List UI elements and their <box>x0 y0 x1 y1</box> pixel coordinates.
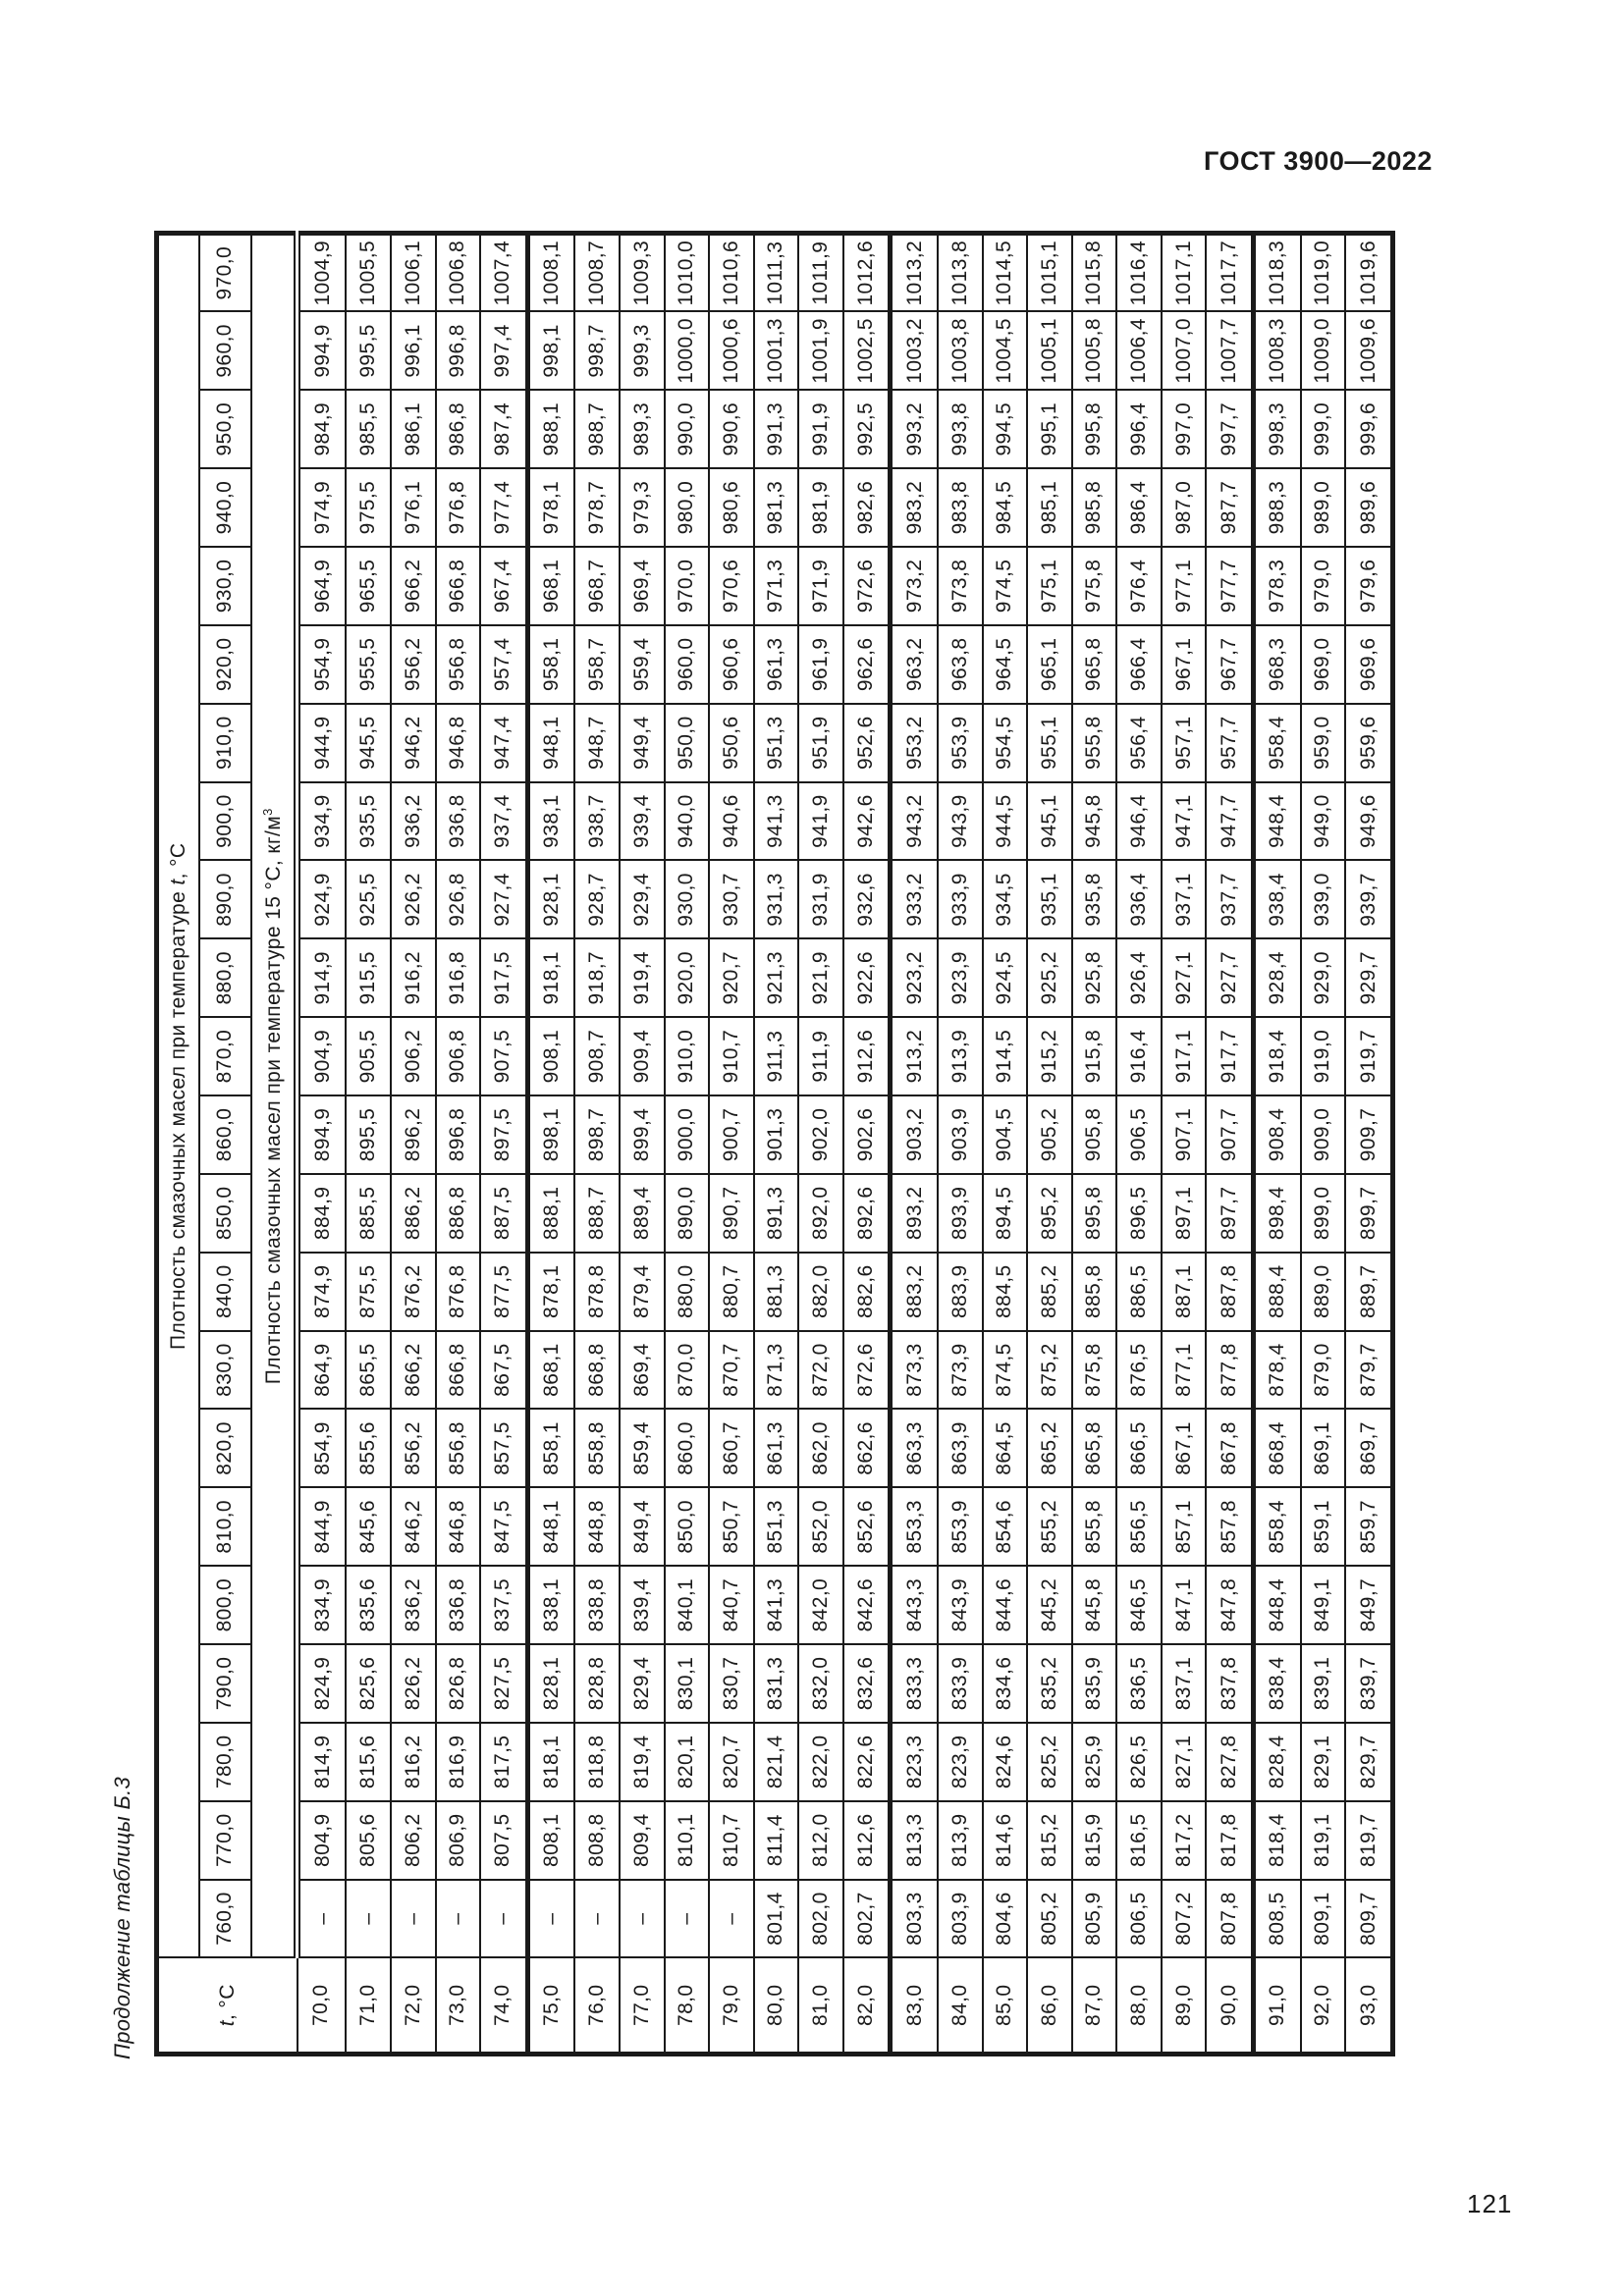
density-value-cell: 830,7 <box>709 1644 754 1723</box>
density-value-cell: 927,4 <box>480 860 527 938</box>
density-value-cell: 832,6 <box>843 1644 891 1723</box>
density-value-cell: 1019,6 <box>1345 234 1392 312</box>
density-value-cell: 988,1 <box>527 390 574 468</box>
density-col-header: 920,0 <box>199 625 251 704</box>
density-value-cell: 907,1 <box>1162 1095 1207 1174</box>
density-value-cell: 885,5 <box>346 1174 391 1253</box>
density-value-cell: 887,5 <box>480 1174 527 1253</box>
density-value-cell: 1002,5 <box>843 311 891 390</box>
density-value-cell: 972,6 <box>843 547 891 625</box>
table-row: 91,0808,5818,4828,4838,4848,4858,4868,48… <box>1253 234 1300 2055</box>
temp-row-header: 93,0 <box>1345 1958 1392 2055</box>
density-value-cell: 975,5 <box>346 468 391 547</box>
density-value-cell: 846,5 <box>1116 1566 1162 1644</box>
density-value-cell: 989,0 <box>1301 468 1346 547</box>
density-value-cell: 956,2 <box>391 625 436 704</box>
density-value-cell: 939,7 <box>1345 860 1392 938</box>
table-continuation-label: Продолжение таблицы Б.3 <box>110 1777 135 2059</box>
density-value-cell: 868,8 <box>574 1331 620 1410</box>
density-col-header: 820,0 <box>199 1409 251 1487</box>
density-value-cell: 919,0 <box>1301 1017 1346 1095</box>
density-value-cell: 1011,9 <box>798 234 843 312</box>
rotated-table-area: t, °С Плотность смазочных масел при темп… <box>154 231 1395 2056</box>
density-value-cell: 980,0 <box>665 468 710 547</box>
density-value-cell: 951,3 <box>754 704 799 782</box>
density-value-cell: 873,9 <box>938 1331 983 1410</box>
density-value-cell: 870,7 <box>709 1331 754 1410</box>
temp-row-header: 81,0 <box>798 1958 843 2055</box>
density-col-header: 790,0 <box>199 1644 251 1723</box>
density-value-cell: 985,5 <box>346 390 391 468</box>
temp-row-header: 90,0 <box>1206 1958 1253 2055</box>
density-value-cell: 885,8 <box>1072 1253 1117 1331</box>
density-value-cell: 813,3 <box>891 1801 938 1880</box>
density-value-cell: 892,6 <box>843 1174 891 1253</box>
density-value-cell: 834,9 <box>298 1566 347 1644</box>
density-value-cell: 946,2 <box>391 704 436 782</box>
density-value-cell: 1015,8 <box>1072 234 1117 312</box>
density-value-cell: 950,6 <box>709 704 754 782</box>
density-value-cell: 908,7 <box>574 1017 620 1095</box>
density-value-cell: 940,0 <box>665 782 710 861</box>
density-value-cell: 856,2 <box>391 1409 436 1487</box>
density-value-cell: 897,7 <box>1206 1174 1253 1253</box>
density-value-cell: 938,1 <box>527 782 574 861</box>
density-value-cell: 1013,2 <box>891 234 938 312</box>
density-value-cell: 930,7 <box>709 860 754 938</box>
density-value-cell: 853,3 <box>891 1487 938 1566</box>
density-col-header: 960,0 <box>199 311 251 390</box>
density-value-cell: 816,2 <box>391 1723 436 1801</box>
density-value-cell: 975,1 <box>1027 547 1072 625</box>
density-value-cell: 888,1 <box>527 1174 574 1253</box>
table-row: 86,0805,2815,2825,2835,2845,2855,2865,28… <box>1027 234 1072 2055</box>
density-value-cell: 898,7 <box>574 1095 620 1174</box>
density-value-cell: 839,1 <box>1301 1644 1346 1723</box>
density-value-cell: 905,5 <box>346 1017 391 1095</box>
table-row: 83,0803,3813,3823,3833,3843,3853,3863,38… <box>891 234 938 2055</box>
density-value-cell: 965,8 <box>1072 625 1117 704</box>
density-value-cell: 813,9 <box>938 1801 983 1880</box>
density-value-cell: 809,7 <box>1345 1880 1392 1958</box>
density-value-cell: 865,2 <box>1027 1409 1072 1487</box>
density-value-cell: 941,9 <box>798 782 843 861</box>
density-value-cell: 873,3 <box>891 1331 938 1410</box>
density-value-cell: 880,0 <box>665 1253 710 1331</box>
density-value-cell: 898,1 <box>527 1095 574 1174</box>
density-value-cell: 891,3 <box>754 1174 799 1253</box>
density-value-cell: 924,9 <box>298 860 347 938</box>
density-value-cell: 1004,9 <box>298 234 347 312</box>
density-value-cell: 850,0 <box>665 1487 710 1566</box>
density-value-cell: 946,4 <box>1116 782 1162 861</box>
temp-row-header: 73,0 <box>436 1958 481 2055</box>
density-value-cell: 829,4 <box>620 1644 665 1723</box>
density-value-cell: 888,7 <box>574 1174 620 1253</box>
density-value-cell: 969,6 <box>1345 625 1392 704</box>
temp-row-header: 78,0 <box>665 1958 710 2055</box>
density-col-header: 860,0 <box>199 1095 251 1174</box>
density-value-cell: – <box>574 1880 620 1958</box>
density-value-cell: 935,5 <box>346 782 391 861</box>
table-row: 89,0807,2817,2827,1837,1847,1857,1867,18… <box>1162 234 1207 2055</box>
density-value-cell: 825,6 <box>346 1644 391 1723</box>
density-value-cell: 955,5 <box>346 625 391 704</box>
doc-designation: ГОСТ 3900—2022 <box>1204 146 1433 177</box>
density-value-cell: 966,8 <box>436 547 481 625</box>
density-value-cell: 957,4 <box>480 625 527 704</box>
density-value-cell: 923,9 <box>938 938 983 1017</box>
density-value-cell: 893,2 <box>891 1174 938 1253</box>
density-value-cell: 892,0 <box>798 1174 843 1253</box>
density-value-cell: 871,3 <box>754 1331 799 1410</box>
density-value-cell: 903,2 <box>891 1095 938 1174</box>
density-value-cell: 838,1 <box>527 1566 574 1644</box>
density-value-cell: 900,0 <box>665 1095 710 1174</box>
density-value-cell: 986,8 <box>436 390 481 468</box>
density-value-cell: 995,1 <box>1027 390 1072 468</box>
density-value-cell: 847,1 <box>1162 1566 1207 1644</box>
density-value-cell: 994,9 <box>298 311 347 390</box>
density-value-cell: 896,5 <box>1116 1174 1162 1253</box>
density-value-cell: 916,2 <box>391 938 436 1017</box>
density-value-cell: 810,7 <box>709 1801 754 1880</box>
density-value-cell: 899,7 <box>1345 1174 1392 1253</box>
density-col-header: 830,0 <box>199 1331 251 1410</box>
density-value-cell: 1017,1 <box>1162 234 1207 312</box>
density-value-cell: 914,9 <box>298 938 347 1017</box>
density-value-cell: 974,9 <box>298 468 347 547</box>
density-value-cell: 973,8 <box>938 547 983 625</box>
density-value-cell: 1016,4 <box>1116 234 1162 312</box>
density-value-cell: 968,7 <box>574 547 620 625</box>
density-column-headers: 760,0770,0780,0790,0800,0810,0820,0830,0… <box>199 234 251 2055</box>
density-value-cell: 823,9 <box>938 1723 983 1801</box>
density-value-cell: 939,0 <box>1301 860 1346 938</box>
density-value-cell: 809,4 <box>620 1801 665 1880</box>
density-value-cell: 804,6 <box>983 1880 1028 1958</box>
density-value-cell: 965,5 <box>346 547 391 625</box>
document-page: ГОСТ 3900—2022 Продолжение таблицы Б.3 t… <box>0 0 1624 2296</box>
density-value-cell: – <box>298 1880 347 1958</box>
density-value-cell: 962,6 <box>843 625 891 704</box>
density-value-cell: 1003,2 <box>891 311 938 390</box>
density-value-cell: 998,3 <box>1253 390 1300 468</box>
density-value-cell: 922,6 <box>843 938 891 1017</box>
density-value-cell: 828,8 <box>574 1644 620 1723</box>
density-value-cell: 816,5 <box>1116 1801 1162 1880</box>
density-value-cell: 839,4 <box>620 1566 665 1644</box>
density-value-cell: 853,9 <box>938 1487 983 1566</box>
density-value-cell: 967,7 <box>1206 625 1253 704</box>
density-value-cell: 868,4 <box>1253 1409 1300 1487</box>
density-conversion-table: t, °С Плотность смазочных масел при темп… <box>154 231 1395 2056</box>
density-value-cell: 867,8 <box>1206 1409 1253 1487</box>
density-value-cell: 829,1 <box>1301 1723 1346 1801</box>
density-value-cell: 884,5 <box>983 1253 1028 1331</box>
density-value-cell: 895,2 <box>1027 1174 1072 1253</box>
density-value-cell: 983,2 <box>891 468 938 547</box>
density-value-cell: 997,4 <box>480 311 527 390</box>
density-value-cell: 958,7 <box>574 625 620 704</box>
density-value-cell: 990,6 <box>709 390 754 468</box>
density-value-cell: 808,5 <box>1253 1880 1300 1958</box>
density-value-cell: 812,0 <box>798 1801 843 1880</box>
density-value-cell: 916,4 <box>1116 1017 1162 1095</box>
header-row-group-title: t, °С Плотность смазочных масел при темп… <box>157 234 199 2055</box>
density-value-cell: 999,6 <box>1345 390 1392 468</box>
density-value-cell: 801,4 <box>754 1880 799 1958</box>
table-row: 92,0809,1819,1829,1839,1849,1859,1869,18… <box>1301 234 1346 2055</box>
density-value-cell: 925,5 <box>346 860 391 938</box>
table-row: 79,0–810,7820,7830,7840,7850,7860,7870,7… <box>709 234 754 2055</box>
density-value-cell: 844,9 <box>298 1487 347 1566</box>
density-value-cell: 1019,0 <box>1301 234 1346 312</box>
density-value-cell: 999,3 <box>620 311 665 390</box>
density-value-cell: 887,8 <box>1206 1253 1253 1331</box>
density-value-cell: 964,9 <box>298 547 347 625</box>
density-value-cell: 809,1 <box>1301 1880 1346 1958</box>
density-value-cell: 861,3 <box>754 1409 799 1487</box>
density-value-cell: 807,2 <box>1162 1880 1207 1958</box>
density-value-cell: 920,0 <box>665 938 710 1017</box>
density-value-cell: 829,7 <box>1345 1723 1392 1801</box>
density-value-cell: 904,5 <box>983 1095 1028 1174</box>
density-value-cell: 903,9 <box>938 1095 983 1174</box>
density-value-cell: 867,5 <box>480 1331 527 1410</box>
density-value-cell: 909,7 <box>1345 1095 1392 1174</box>
density-value-cell: 991,3 <box>754 390 799 468</box>
density-value-cell: 855,8 <box>1072 1487 1117 1566</box>
density-value-cell: 894,9 <box>298 1095 347 1174</box>
table-row: 76,0–808,8818,8828,8838,8848,8858,8868,8… <box>574 234 620 2055</box>
density-value-cell: 1009,6 <box>1345 311 1392 390</box>
density-value-cell: 918,7 <box>574 938 620 1017</box>
density-value-cell: 982,6 <box>843 468 891 547</box>
temp-row-header: 84,0 <box>938 1958 983 2055</box>
density-value-cell: 998,7 <box>574 311 620 390</box>
table-row: 93,0809,7819,7829,7839,7849,7859,7869,78… <box>1345 234 1392 2055</box>
density-value-cell: 961,3 <box>754 625 799 704</box>
density-value-cell: 834,6 <box>983 1644 1028 1723</box>
density-value-cell: 975,8 <box>1072 547 1117 625</box>
density-value-cell: 948,1 <box>527 704 574 782</box>
density-value-cell: 888,4 <box>1253 1253 1300 1331</box>
density-col-header: 810,0 <box>199 1487 251 1566</box>
density-value-cell: 947,4 <box>480 704 527 782</box>
density-value-cell: 1007,4 <box>480 234 527 312</box>
density-value-cell: 998,1 <box>527 311 574 390</box>
density-value-cell: 949,6 <box>1345 782 1392 861</box>
table-row: 80,0801,4811,4821,4831,3841,3851,3861,38… <box>754 234 799 2055</box>
density-value-cell: 826,2 <box>391 1644 436 1723</box>
density-value-cell: 956,8 <box>436 625 481 704</box>
density-value-cell: 937,1 <box>1162 860 1207 938</box>
density-value-cell: 865,8 <box>1072 1409 1117 1487</box>
density-value-cell: 928,7 <box>574 860 620 938</box>
density-value-cell: 893,9 <box>938 1174 983 1253</box>
density-value-cell: 832,0 <box>798 1644 843 1723</box>
density-value-cell: 840,7 <box>709 1566 754 1644</box>
density-value-cell: 963,2 <box>891 625 938 704</box>
density-value-cell: 881,3 <box>754 1253 799 1331</box>
density-value-cell: 945,8 <box>1072 782 1117 861</box>
density-value-cell: 842,6 <box>843 1566 891 1644</box>
density-value-cell: 968,3 <box>1253 625 1300 704</box>
density-value-cell: 957,7 <box>1206 704 1253 782</box>
density-value-cell: 948,4 <box>1253 782 1300 861</box>
density-value-cell: 1017,7 <box>1206 234 1253 312</box>
density-value-cell: 803,3 <box>891 1880 938 1958</box>
density-value-cell: 860,0 <box>665 1409 710 1487</box>
density-value-cell: 956,4 <box>1116 704 1162 782</box>
density-value-cell: 848,8 <box>574 1487 620 1566</box>
density-value-cell: 849,1 <box>1301 1566 1346 1644</box>
density-value-cell: 927,1 <box>1162 938 1207 1017</box>
density-value-cell: 807,5 <box>480 1801 527 1880</box>
density-value-cell: 1010,0 <box>665 234 710 312</box>
density-value-cell: 846,8 <box>436 1487 481 1566</box>
density-value-cell: 821,4 <box>754 1723 799 1801</box>
density-value-cell: 928,1 <box>527 860 574 938</box>
density-value-cell: 947,7 <box>1206 782 1253 861</box>
density-value-cell: 803,9 <box>938 1880 983 1958</box>
density-value-cell: 977,7 <box>1206 547 1253 625</box>
density-value-cell: 866,2 <box>391 1331 436 1410</box>
density-value-cell: 835,2 <box>1027 1644 1072 1723</box>
density-value-cell: 827,5 <box>480 1644 527 1723</box>
density-col-header: 940,0 <box>199 468 251 547</box>
density-value-cell: 950,0 <box>665 704 710 782</box>
density-value-cell: 815,2 <box>1027 1801 1072 1880</box>
density-value-cell: 909,4 <box>620 1017 665 1095</box>
density-value-cell: – <box>620 1880 665 1958</box>
density-value-cell: 986,1 <box>391 390 436 468</box>
density-value-cell: 979,3 <box>620 468 665 547</box>
temp-row-header: 83,0 <box>891 1958 938 2055</box>
density-value-cell: 918,4 <box>1253 1017 1300 1095</box>
density-value-cell: 874,5 <box>983 1331 1028 1410</box>
table-row: 71,0–805,6815,6825,6835,6845,6855,6865,5… <box>346 234 391 2055</box>
temp-row-header: 80,0 <box>754 1958 799 2055</box>
density-value-cell: 1005,5 <box>346 234 391 312</box>
density-value-cell: 1015,1 <box>1027 234 1072 312</box>
density-value-cell: 942,6 <box>843 782 891 861</box>
density-value-cell: 916,8 <box>436 938 481 1017</box>
density-value-cell: 868,1 <box>527 1331 574 1410</box>
density-value-cell: 953,2 <box>891 704 938 782</box>
density-value-cell: 877,1 <box>1162 1331 1207 1410</box>
density-value-cell: 851,3 <box>754 1487 799 1566</box>
density-value-cell: – <box>527 1880 574 1958</box>
density-value-cell: 818,8 <box>574 1723 620 1801</box>
density-value-cell: 1006,8 <box>436 234 481 312</box>
density-value-cell: 917,1 <box>1162 1017 1207 1095</box>
density-value-cell: 990,0 <box>665 390 710 468</box>
density-col-header: 880,0 <box>199 938 251 1017</box>
density-value-cell: 883,9 <box>938 1253 983 1331</box>
density-value-cell: 846,2 <box>391 1487 436 1566</box>
density-value-cell: 876,5 <box>1116 1331 1162 1410</box>
density-col-header: 800,0 <box>199 1566 251 1644</box>
density-value-cell: – <box>480 1880 527 1958</box>
density-value-cell: 929,7 <box>1345 938 1392 1017</box>
density-value-cell: 993,2 <box>891 390 938 468</box>
density-value-cell: 828,1 <box>527 1644 574 1723</box>
density-value-cell: 976,1 <box>391 468 436 547</box>
density-value-cell: 1007,0 <box>1162 311 1207 390</box>
density-value-cell: 845,8 <box>1072 1566 1117 1644</box>
temp-row-header: 79,0 <box>709 1958 754 2055</box>
density-value-cell: 945,5 <box>346 704 391 782</box>
density-value-cell: 966,4 <box>1116 625 1162 704</box>
density-value-cell: 901,3 <box>754 1095 799 1174</box>
density-value-cell: 926,8 <box>436 860 481 938</box>
density-value-cell: 904,9 <box>298 1017 347 1095</box>
density-value-cell: 964,5 <box>983 625 1028 704</box>
density-value-cell: 816,9 <box>436 1723 481 1801</box>
density-value-cell: 847,5 <box>480 1487 527 1566</box>
density-value-cell: 1010,6 <box>709 234 754 312</box>
density-value-cell: 859,1 <box>1301 1487 1346 1566</box>
density-value-cell: 963,8 <box>938 625 983 704</box>
density-value-cell: 819,4 <box>620 1723 665 1801</box>
density-value-cell: 947,1 <box>1162 782 1207 861</box>
density-value-cell: 1008,7 <box>574 234 620 312</box>
density-value-cell: 908,1 <box>527 1017 574 1095</box>
density-value-cell: 936,8 <box>436 782 481 861</box>
density-value-cell: 876,2 <box>391 1253 436 1331</box>
density-value-cell: 1004,5 <box>983 311 1028 390</box>
density-value-cell: 845,2 <box>1027 1566 1072 1644</box>
density-value-cell: 878,4 <box>1253 1331 1300 1410</box>
density-value-cell: 882,0 <box>798 1253 843 1331</box>
density-value-cell: 986,4 <box>1116 468 1162 547</box>
density-value-cell: 886,8 <box>436 1174 481 1253</box>
density-value-cell: 973,2 <box>891 547 938 625</box>
density-value-cell: 811,4 <box>754 1801 799 1880</box>
density-value-cell: 997,0 <box>1162 390 1207 468</box>
density-value-cell: 879,4 <box>620 1253 665 1331</box>
density-value-cell: 814,6 <box>983 1801 1028 1880</box>
density-value-cell: 840,1 <box>665 1566 710 1644</box>
density-value-cell: 845,6 <box>346 1487 391 1566</box>
density-value-cell: 830,1 <box>665 1644 710 1723</box>
density-value-cell: 919,4 <box>620 938 665 1017</box>
density-value-cell: 978,7 <box>574 468 620 547</box>
density-value-cell: 985,1 <box>1027 468 1072 547</box>
density-col-header: 780,0 <box>199 1723 251 1801</box>
density-value-cell: – <box>391 1880 436 1958</box>
density-col-header: 770,0 <box>199 1801 251 1880</box>
density-value-cell: 806,9 <box>436 1801 481 1880</box>
density-value-cell: 822,0 <box>798 1723 843 1801</box>
density-value-cell: 1005,1 <box>1027 311 1072 390</box>
density-value-cell: 1009,3 <box>620 234 665 312</box>
density-value-cell: 828,4 <box>1253 1723 1300 1801</box>
temp-row-header: 75,0 <box>527 1958 574 2055</box>
density-value-cell: 949,4 <box>620 704 665 782</box>
table-row: 72,0–806,2816,2826,2836,2846,2856,2866,2… <box>391 234 436 2055</box>
table-row: 77,0–809,4819,4829,4839,4849,4859,4869,4… <box>620 234 665 2055</box>
density-value-cell: 981,3 <box>754 468 799 547</box>
density-value-cell: 923,2 <box>891 938 938 1017</box>
density-value-cell: 849,7 <box>1345 1566 1392 1644</box>
density-value-cell: 807,8 <box>1206 1880 1253 1958</box>
density-value-cell: 844,6 <box>983 1566 1028 1644</box>
density-value-cell: 939,4 <box>620 782 665 861</box>
density-value-cell: 858,1 <box>527 1409 574 1487</box>
